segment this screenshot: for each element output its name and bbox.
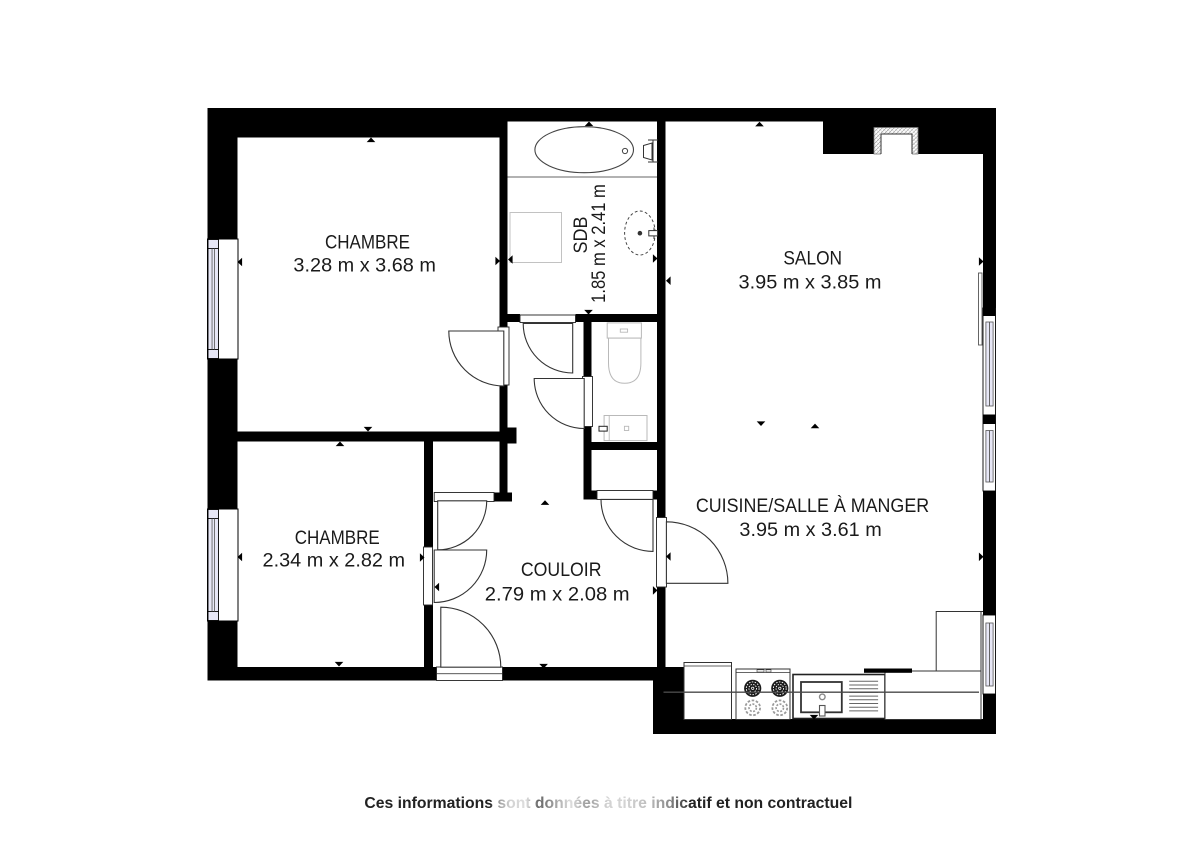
svg-text:SALON: SALON <box>783 248 842 270</box>
svg-text:COULOIR: COULOIR <box>521 559 602 581</box>
svg-text:CHAMBRE: CHAMBRE <box>325 231 410 253</box>
svg-text:3.28 m x 3.68 m: 3.28 m x 3.68 m <box>293 255 436 277</box>
svg-text:CHAMBRE: CHAMBRE <box>295 527 380 549</box>
svg-text:3.95 m x 3.85 m: 3.95 m x 3.85 m <box>739 272 882 294</box>
svg-text:2.34 m x 2.82 m: 2.34 m x 2.82 m <box>263 550 406 572</box>
svg-text:2.79 m x 2.08 m: 2.79 m x 2.08 m <box>485 583 630 605</box>
svg-text:1.85 m x 2.41 m: 1.85 m x 2.41 m <box>588 184 610 303</box>
svg-text:3.95 m x 3.61 m: 3.95 m x 3.61 m <box>739 519 881 541</box>
svg-text:CUISINE/SALLE À MANGER: CUISINE/SALLE À MANGER <box>696 494 929 517</box>
